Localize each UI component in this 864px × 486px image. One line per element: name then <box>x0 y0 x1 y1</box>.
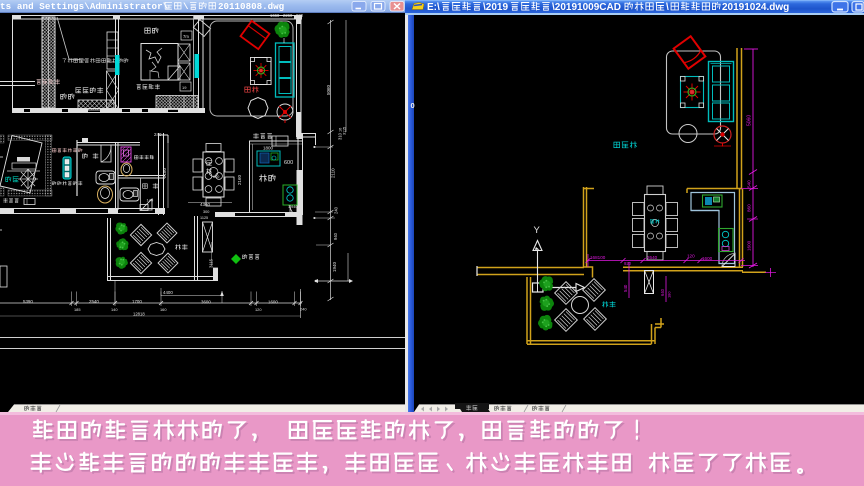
svg-text:20110808.dwg: 20110808.dwg <box>218 1 284 12</box>
svg-text:120: 120 <box>687 254 695 259</box>
svg-text:2540: 2540 <box>89 299 99 304</box>
svg-text:3115: 3115 <box>209 258 214 268</box>
svg-text:5060: 5060 <box>747 115 753 126</box>
svg-text:3115: 3115 <box>343 127 347 135</box>
svg-text:540: 540 <box>623 284 628 292</box>
svg-text:1660: 1660 <box>270 13 280 18</box>
svg-text:185: 185 <box>74 307 81 312</box>
svg-text:\: \ <box>666 2 669 13</box>
svg-text:920: 920 <box>624 261 632 266</box>
svg-text:\20191009CAD: \20191009CAD <box>552 2 621 13</box>
svg-text:940: 940 <box>333 232 338 240</box>
svg-text:300: 300 <box>203 210 209 214</box>
svg-text:160: 160 <box>160 307 167 312</box>
svg-text:600: 600 <box>284 160 293 166</box>
svg-text:\: \ <box>183 1 189 12</box>
svg-text:7m: 7m <box>183 34 189 39</box>
svg-text:20191024.dwg: 20191024.dwg <box>722 2 789 13</box>
svg-text:140: 140 <box>147 198 154 203</box>
svg-text:2160: 2160 <box>237 174 242 185</box>
svg-text:240: 240 <box>334 206 339 214</box>
svg-text:640: 640 <box>660 288 665 296</box>
svg-text:5390: 5390 <box>23 299 33 304</box>
svg-text:240: 240 <box>300 307 307 312</box>
svg-text:ts and Settings\Administrator\: ts and Settings\Administrator\ <box>0 1 169 12</box>
svg-text:1125: 1125 <box>200 216 208 220</box>
svg-text:540: 540 <box>747 180 752 188</box>
svg-text:140: 140 <box>111 307 118 312</box>
svg-text:2260: 2260 <box>283 13 293 18</box>
svg-text:1600: 1600 <box>702 256 713 261</box>
svg-text:168100: 168100 <box>590 255 606 260</box>
svg-text:860: 860 <box>747 204 752 212</box>
svg-text:E:\: E:\ <box>427 2 440 13</box>
svg-text:4400: 4400 <box>163 290 173 295</box>
svg-text:240: 240 <box>154 132 162 137</box>
svg-text:\2019: \2019 <box>483 2 508 13</box>
svg-text:1940: 1940 <box>332 261 337 272</box>
svg-text:0: 0 <box>411 101 415 110</box>
svg-text:5060: 5060 <box>326 84 331 95</box>
svg-text:1800: 1800 <box>263 146 274 151</box>
svg-text:800: 800 <box>213 175 219 179</box>
svg-text:1600: 1600 <box>268 300 278 305</box>
svg-text:120: 120 <box>255 307 262 312</box>
svg-text:1600: 1600 <box>747 240 752 251</box>
svg-text:2110: 2110 <box>331 168 336 178</box>
svg-text:2180: 2180 <box>162 167 167 178</box>
svg-text:Y: Y <box>534 225 541 236</box>
svg-text:19: 19 <box>182 85 187 90</box>
svg-text:600: 600 <box>296 13 304 18</box>
svg-text:180: 180 <box>667 291 672 298</box>
svg-text:1.940: 1.940 <box>288 205 298 209</box>
svg-text:3600: 3600 <box>201 300 211 305</box>
svg-text:2640: 2640 <box>647 255 658 260</box>
svg-text:1700: 1700 <box>132 299 142 304</box>
